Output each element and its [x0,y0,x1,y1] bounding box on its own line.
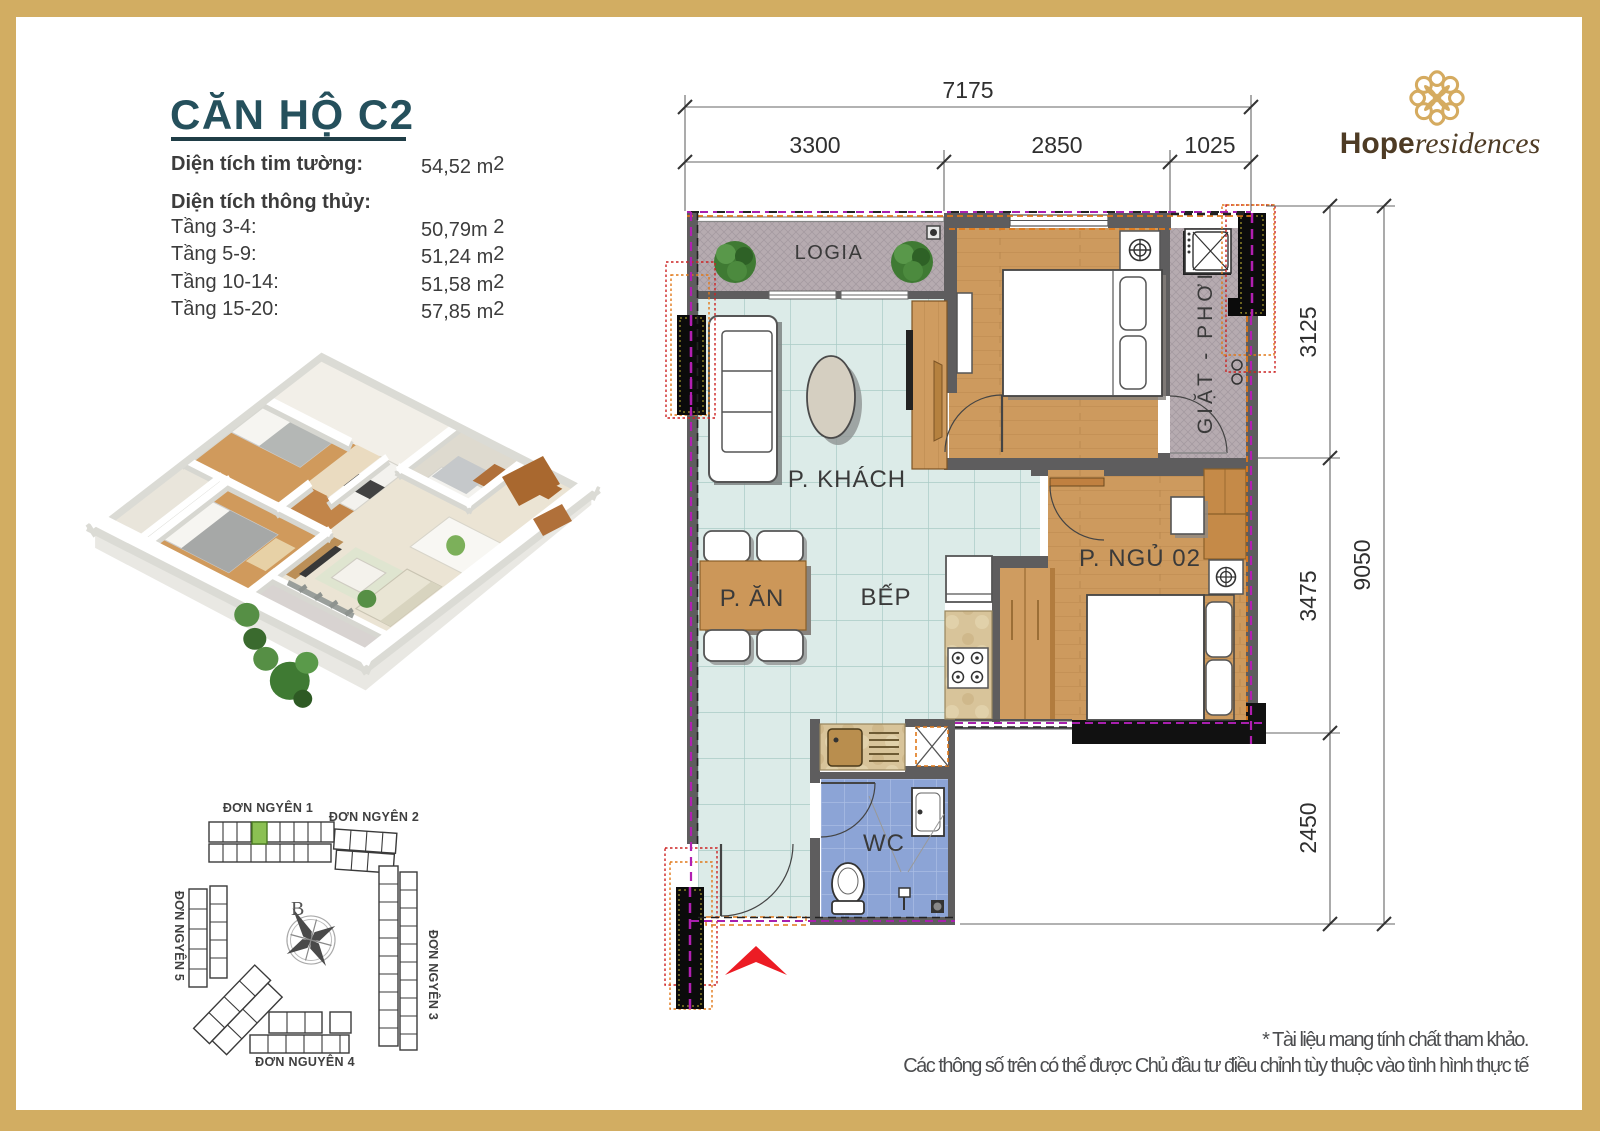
svg-text:BẾP: BẾP [860,583,911,611]
svg-text:2850: 2850 [1031,132,1082,158]
svg-text:1025: 1025 [1184,132,1235,158]
svg-text:P. ĂN: P. ĂN [720,585,785,612]
svg-text:P. KHÁCH: P. KHÁCH [788,466,906,493]
svg-text:ĐƠN NGUYÊN 4: ĐƠN NGUYÊN 4 [255,1054,355,1069]
svg-text:2450: 2450 [1295,802,1321,853]
svg-text:9050: 9050 [1349,539,1375,590]
svg-text:B: B [291,898,304,920]
svg-text:LOGIA: LOGIA [795,242,864,264]
svg-text:3300: 3300 [789,132,840,158]
svg-text:ĐƠN NGYÊN 2: ĐƠN NGYÊN 2 [329,809,419,824]
svg-text:3125: 3125 [1295,306,1321,357]
svg-text:ĐƠN NGYÊN 3: ĐƠN NGYÊN 3 [426,930,441,1020]
svg-text:3475: 3475 [1295,570,1321,621]
svg-text:ĐƠN NGYÊN 5: ĐƠN NGYÊN 5 [172,891,187,981]
svg-text:GIẶT - PHƠI: GIẶT - PHƠI [1194,270,1217,434]
svg-text:P. NGỦ 02: P. NGỦ 02 [1079,543,1201,572]
svg-text:ĐƠN NGYÊN 1: ĐƠN NGYÊN 1 [223,800,313,815]
svg-text:WC: WC [863,830,905,857]
svg-text:7175: 7175 [942,77,993,103]
